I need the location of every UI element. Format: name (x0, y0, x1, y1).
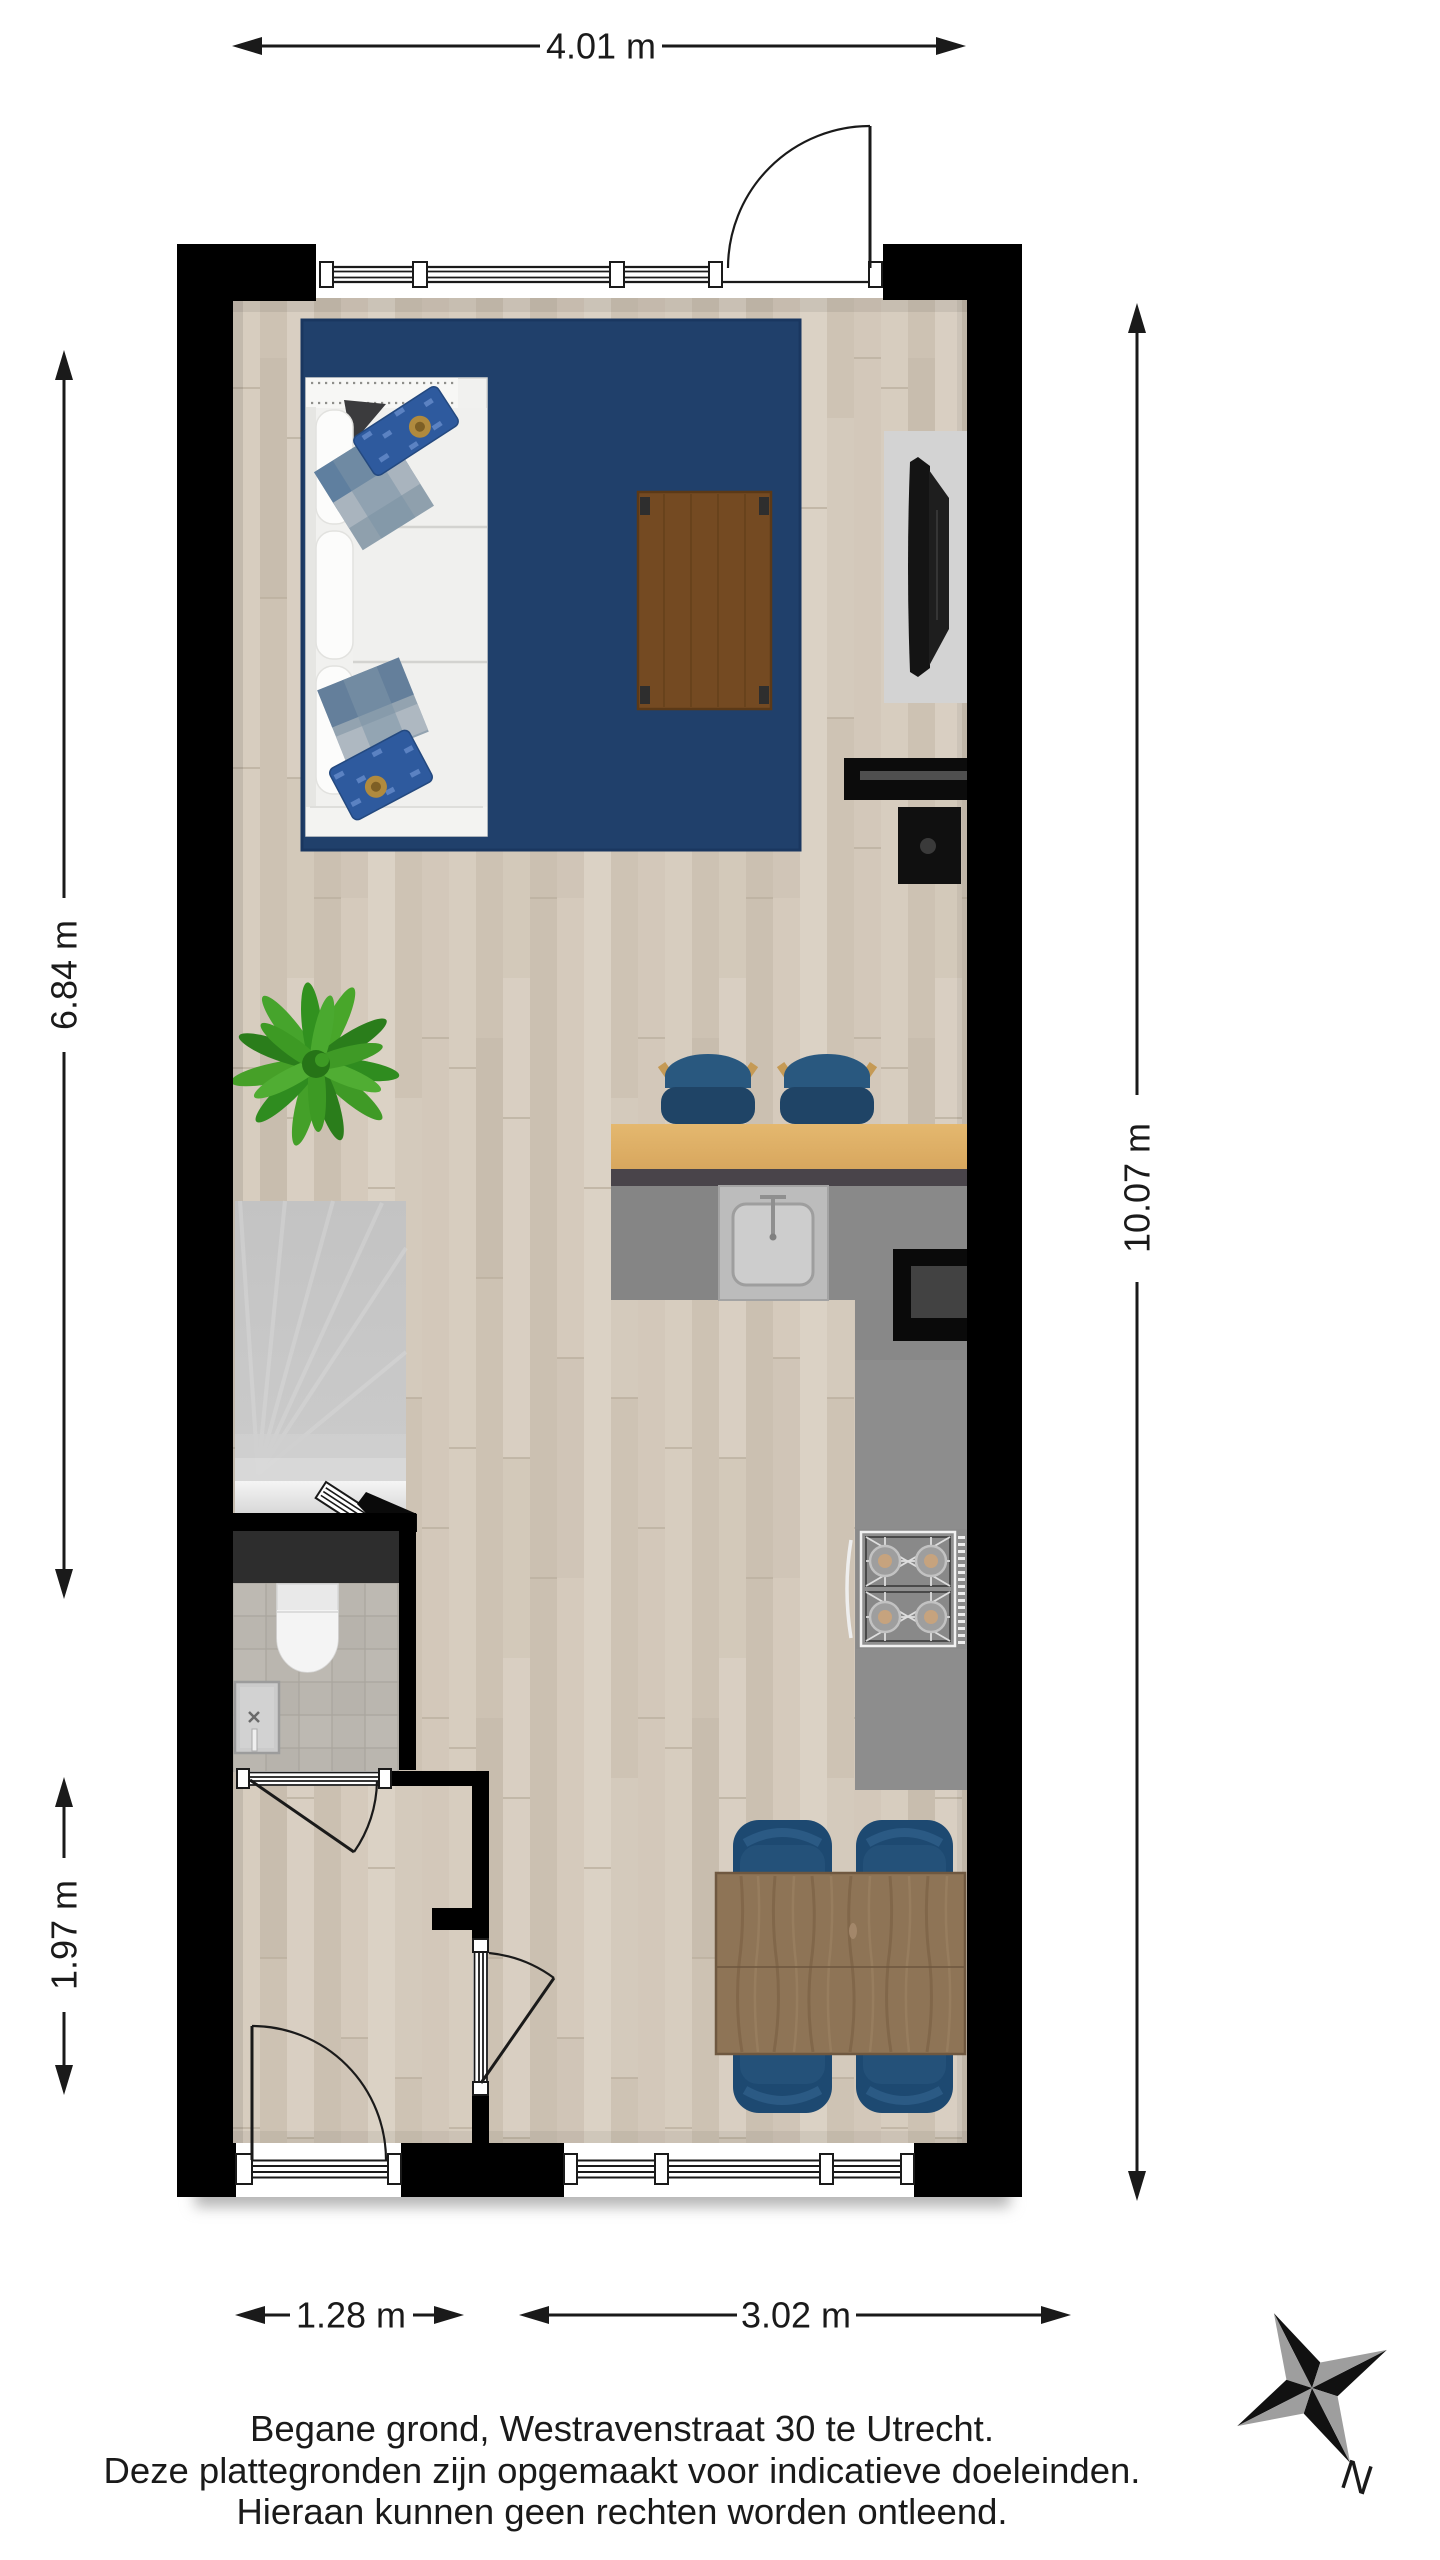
svg-text:Begane grond, Westravenstraat: Begane grond, Westravenstraat 30 te Utre… (250, 2408, 994, 2449)
svg-text:Hieraan kunnen geen rechten wo: Hieraan kunnen geen rechten worden ontle… (236, 2491, 1007, 2532)
svg-text:6.84 m: 6.84 m (44, 920, 85, 1030)
svg-text:1.97 m: 1.97 m (44, 1880, 85, 1990)
svg-text:10.07 m: 10.07 m (1117, 1123, 1158, 1253)
svg-text:Deze plattegronden zijn opgema: Deze plattegronden zijn opgemaakt voor i… (104, 2450, 1141, 2491)
svg-text:3.02 m: 3.02 m (741, 2295, 851, 2336)
svg-text:1.28 m: 1.28 m (296, 2295, 406, 2336)
svg-text:4.01 m: 4.01 m (546, 26, 656, 67)
